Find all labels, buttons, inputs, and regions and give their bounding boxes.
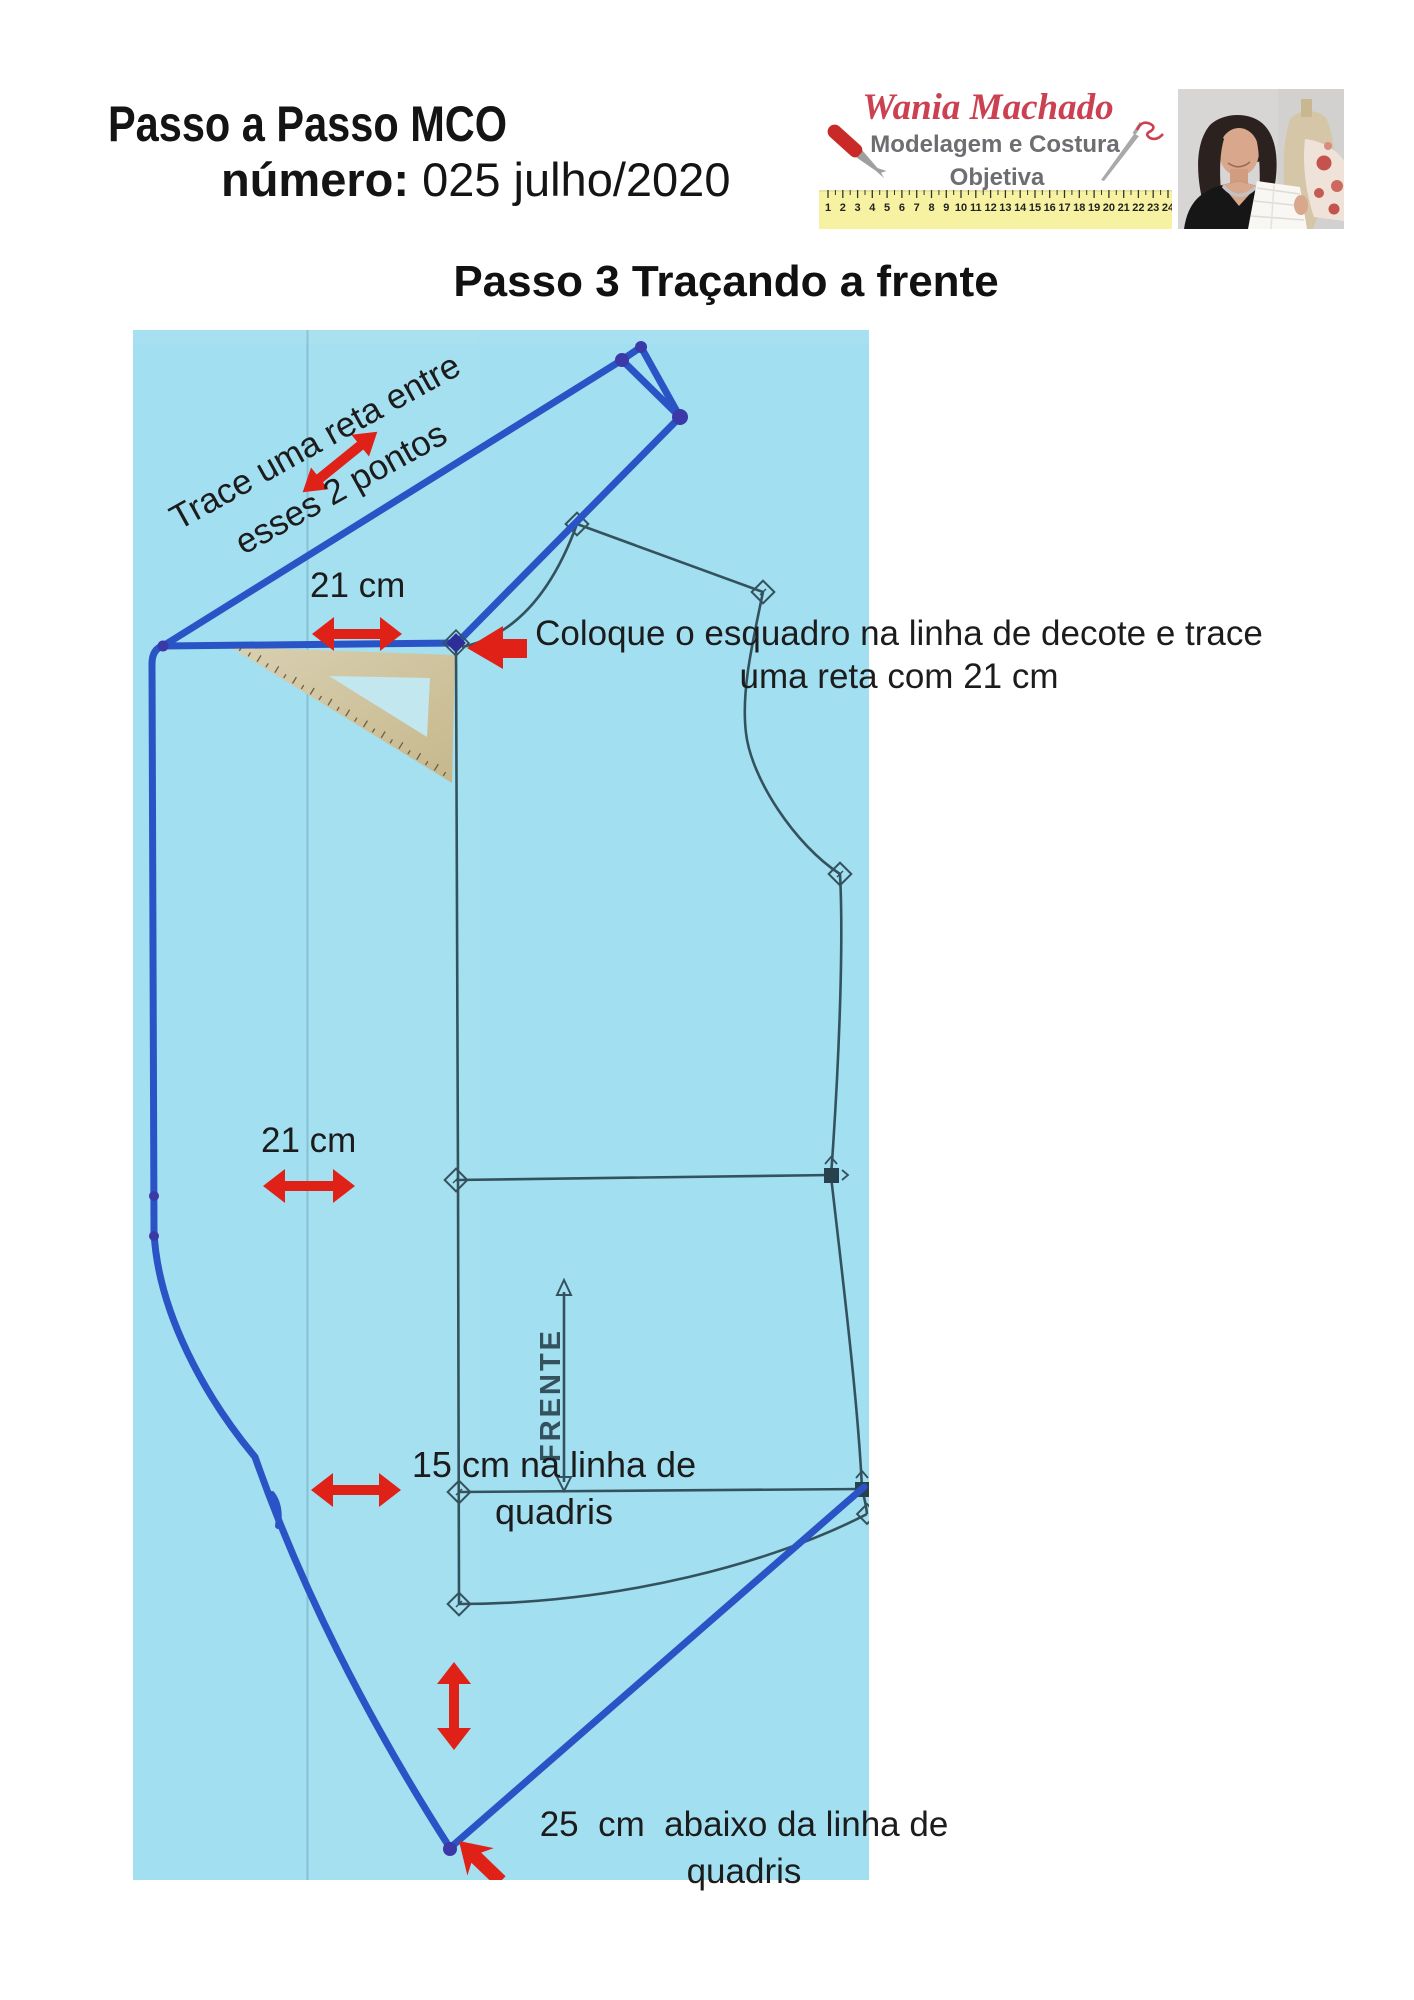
svg-text:9: 9 <box>943 202 949 214</box>
svg-text:10: 10 <box>955 202 967 214</box>
svg-text:20: 20 <box>1103 202 1115 214</box>
svg-text:4: 4 <box>869 202 876 214</box>
svg-text:18: 18 <box>1073 202 1085 214</box>
svg-text:22: 22 <box>1132 202 1144 214</box>
svg-text:24: 24 <box>1162 202 1172 214</box>
svg-text:23: 23 <box>1147 202 1159 214</box>
svg-text:14: 14 <box>1014 202 1027 214</box>
svg-text:5: 5 <box>884 202 890 214</box>
svg-text:19: 19 <box>1088 202 1100 214</box>
svg-text:17: 17 <box>1058 202 1070 214</box>
svg-text:2: 2 <box>840 202 846 214</box>
svg-text:13: 13 <box>999 202 1011 214</box>
svg-text:1: 1 <box>825 202 831 214</box>
svg-text:21: 21 <box>1118 202 1130 214</box>
svg-text:8: 8 <box>928 202 934 214</box>
svg-text:3: 3 <box>855 202 861 214</box>
svg-text:11: 11 <box>970 202 982 214</box>
svg-text:6: 6 <box>899 202 905 214</box>
svg-text:15: 15 <box>1029 202 1041 214</box>
svg-text:7: 7 <box>914 202 920 214</box>
svg-text:12: 12 <box>984 202 996 214</box>
svg-text:16: 16 <box>1044 202 1056 214</box>
